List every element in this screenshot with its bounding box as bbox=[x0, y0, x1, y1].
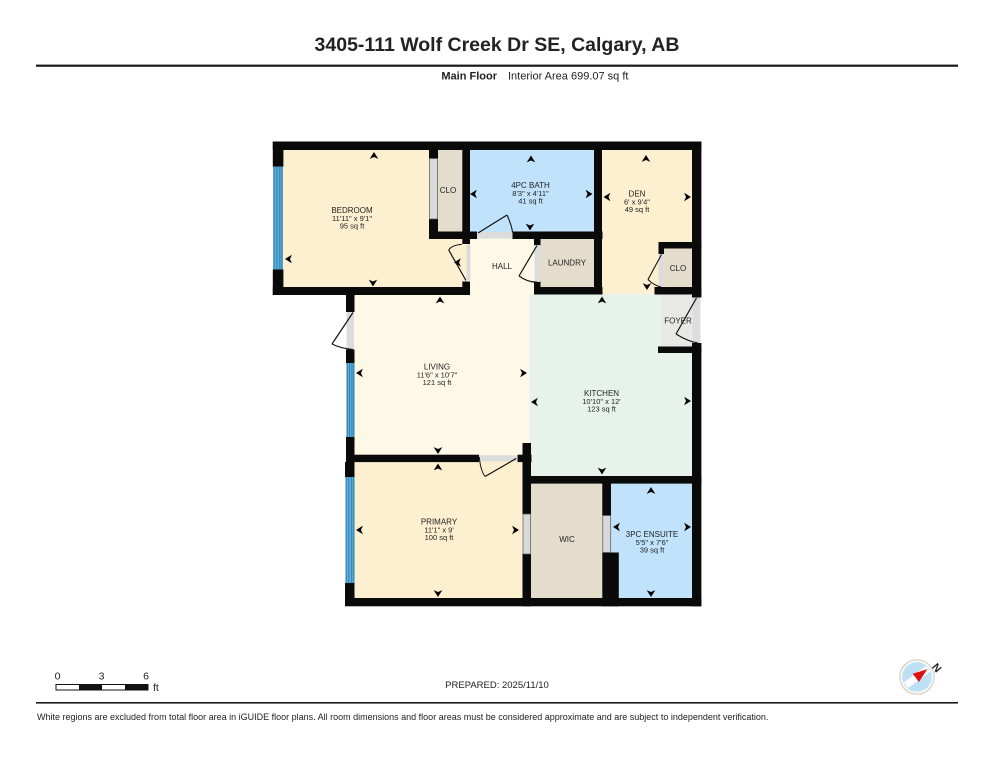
svg-text:ft: ft bbox=[153, 682, 159, 694]
svg-text:Interior Area 699.07 sq ft: Interior Area 699.07 sq ft bbox=[508, 71, 628, 83]
svg-text:6: 6 bbox=[143, 671, 149, 683]
svg-text:49 sq ft: 49 sq ft bbox=[625, 205, 651, 214]
svg-text:CLO: CLO bbox=[670, 264, 686, 273]
svg-text:41 sq ft: 41 sq ft bbox=[518, 197, 544, 206]
svg-text:FOYER: FOYER bbox=[664, 317, 692, 326]
svg-text:White regions are excluded fro: White regions are excluded from total fl… bbox=[37, 712, 768, 722]
svg-text:CLO: CLO bbox=[440, 186, 456, 195]
svg-text:LAUNDRY: LAUNDRY bbox=[548, 259, 587, 268]
svg-text:123 sq ft: 123 sq ft bbox=[587, 405, 617, 414]
svg-text:39 sq ft: 39 sq ft bbox=[640, 546, 666, 555]
svg-text:WIC: WIC bbox=[559, 535, 575, 544]
svg-text:3405-111 Wolf Creek Dr SE, Cal: 3405-111 Wolf Creek Dr SE, Calgary, AB bbox=[315, 34, 680, 56]
svg-text:Main Floor: Main Floor bbox=[441, 71, 497, 83]
svg-text:PREPARED: 2025/11/10: PREPARED: 2025/11/10 bbox=[445, 680, 549, 691]
svg-text:3: 3 bbox=[99, 671, 105, 683]
svg-text:HALL: HALL bbox=[492, 262, 513, 271]
svg-text:95 sq ft: 95 sq ft bbox=[340, 222, 366, 231]
svg-text:121 sq ft: 121 sq ft bbox=[423, 378, 453, 387]
svg-text:100 sq ft: 100 sq ft bbox=[425, 533, 455, 542]
svg-text:0: 0 bbox=[55, 671, 61, 683]
